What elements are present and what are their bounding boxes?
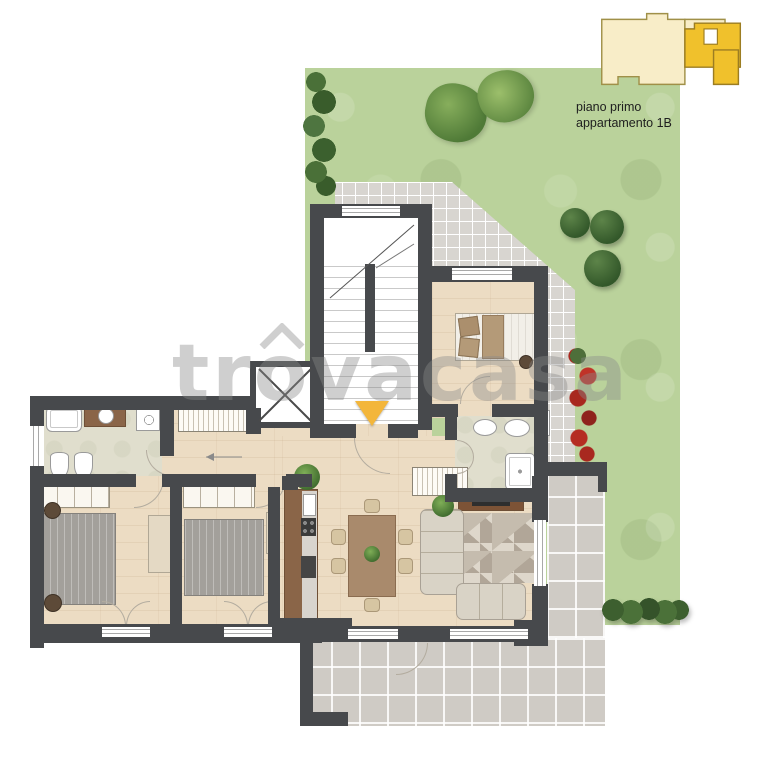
wall-terrace-chunk [280,618,352,636]
wall-bedroom2-right [268,487,280,625]
bush-row [601,594,689,628]
window-bedroom-ne [452,268,512,280]
wall-south-west [30,624,322,643]
washing-machine [136,407,160,431]
window-living-south [348,629,398,639]
table-plant [364,546,380,562]
chair [364,499,380,513]
watermark-text-left: tr [172,329,254,419]
watermark-letter-o: o [254,329,311,419]
chair [398,529,413,545]
wall-bath-west-bottom [30,474,136,487]
sofa-vertical [420,509,464,595]
wall-terrace-foot [300,712,348,726]
legend: piano primo appartamento 1B [576,6,762,131]
floor-plan-canvas: trovacasa piano primo appartamento 1B [0,0,763,768]
watermark: trovacasa [172,326,612,422]
legend-apartment-label: appartamento 1B [576,115,762,131]
stairwell [324,218,418,266]
chair [364,598,380,612]
window-bedroom2 [224,627,272,637]
oven [301,556,316,578]
nightstand [44,502,61,519]
cooktop [301,518,316,536]
watermark-text-right: vacasa [310,329,629,419]
wall-kitchen-stub [282,476,298,490]
hedge [302,70,340,196]
bed-bedroom2 [184,519,264,596]
sofa-horizontal [456,583,526,620]
window-living-east [534,520,546,586]
round-tree [590,210,624,244]
washbasin [98,408,114,424]
house-roof-icon [258,323,306,349]
desk-bedroom1 [148,515,172,573]
building-footprint-icon [576,6,746,92]
shower-tray [505,453,535,490]
bed-bedroom1 [42,513,116,605]
legend-floor-label: piano primo [576,99,762,115]
nightstand [44,594,62,612]
chair [398,558,413,574]
wall-hall-bottom-right [388,424,418,438]
window-bedroom1 [102,627,150,637]
window-stairwell [342,206,400,216]
terrace-door [450,629,528,639]
window-west-bath [30,426,44,466]
wall-terrace-stub [598,476,607,492]
wall-east-mid [532,476,548,522]
round-tree [584,250,621,287]
terrace-bottom [303,638,605,726]
chair [331,558,346,574]
wall-corridor-bottom-a [162,474,256,487]
wall-hall-bottom-left [310,424,356,438]
wall-bedroom-divider [170,487,182,625]
kitchen-sink [303,494,316,516]
chair [331,529,346,545]
round-tree [560,208,590,238]
wall-terrace-h [547,462,607,476]
